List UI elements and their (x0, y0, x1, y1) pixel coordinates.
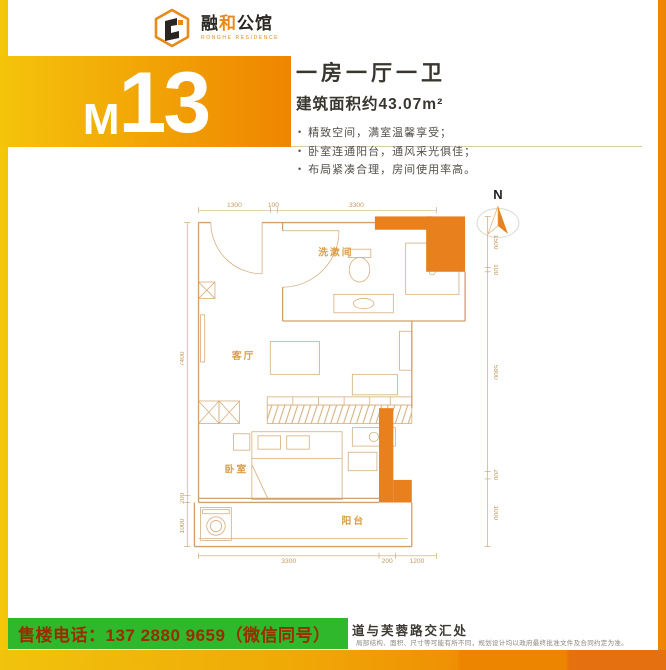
dim-bottom-2: 200 (382, 558, 393, 564)
dim-right-5: 1000 (492, 505, 498, 520)
entry-door (211, 223, 262, 274)
floorplan: 1300 100 3300 3300 200 1200 7400 200 100… (180, 200, 498, 569)
dim-top-2: 100 (268, 202, 279, 209)
washroom-door (283, 231, 339, 287)
feature-item: 精致空间，满室温馨享受； (298, 124, 656, 143)
coffee-table (270, 341, 319, 374)
feature-item: 卧室连通阳台，通风采光俱佳； (298, 143, 656, 162)
room-label-balcony: 阳台 (342, 514, 366, 527)
dim-left-3: 1000 (180, 518, 186, 533)
dim-top-1: 1300 (227, 202, 242, 209)
nightstand (233, 434, 249, 450)
brand-hexagon-icon (150, 7, 194, 49)
brand-subtitle: RONGHE RESIDENCE (201, 35, 279, 41)
cabinet (352, 374, 397, 395)
dim-bottom-1: 3300 (281, 558, 296, 564)
tv-board (201, 315, 205, 362)
accent-walls (375, 216, 465, 502)
side-cabinet (399, 331, 411, 370)
dim-bottom-3: 1200 (410, 558, 425, 564)
washroom-sink (334, 294, 393, 312)
walls (194, 223, 465, 547)
dim-right-1: 1500 (492, 235, 498, 250)
desk (348, 452, 377, 470)
room-label-bedroom: 卧室 (225, 463, 249, 476)
feature-item: 布局紧凑合理，房间使用率高。 (298, 161, 656, 180)
layout-title: 一房一厅一卫 (296, 57, 656, 87)
fixtures (199, 243, 459, 540)
room-labels: 洗漱间 客厅 卧室 阳台 (225, 245, 365, 527)
dim-left-2: 200 (180, 493, 186, 504)
dim-right-4: 200 (492, 469, 498, 480)
brand-logo: 融和公馆 RONGHE RESIDENCE (150, 7, 279, 49)
washing-machine (201, 508, 232, 541)
unit-code-number: 13 (118, 70, 208, 137)
feature-list: 精致空间，满室温馨享受； 卧室连通阳台，通风采光俱佳； 布局紧凑合理，房间使用率… (298, 124, 656, 180)
bottom-gradient-strip (0, 650, 666, 670)
dim-right-3: 5800 (492, 365, 498, 380)
area-text: 建筑面积约43.07m² (296, 92, 656, 114)
room-label-washroom: 洗漱间 (318, 245, 353, 258)
sales-phone-banner: 售楼电话：137 2880 9659（微信同号） (8, 618, 348, 649)
unit-summary: 一房一厅一卫 建筑面积约43.07m² 精致空间，满室温馨享受； 卧室连通阳台，… (296, 57, 656, 180)
dim-top-3: 3300 (349, 202, 364, 209)
brand-name: 融和公馆 (201, 15, 279, 34)
dim-right-2: 100 (492, 264, 498, 275)
bed (252, 432, 342, 500)
unit-code-band: M 13 (0, 56, 291, 147)
dim-left-1: 7400 (180, 351, 186, 366)
unit-code-prefix: M (83, 103, 119, 137)
disclaimer-text: 局部结构、面积、尺寸等可能有所不同，规划设计均以政府最终批准文件及合同约定为准。 (356, 637, 628, 647)
room-label-living: 客厅 (231, 349, 256, 362)
